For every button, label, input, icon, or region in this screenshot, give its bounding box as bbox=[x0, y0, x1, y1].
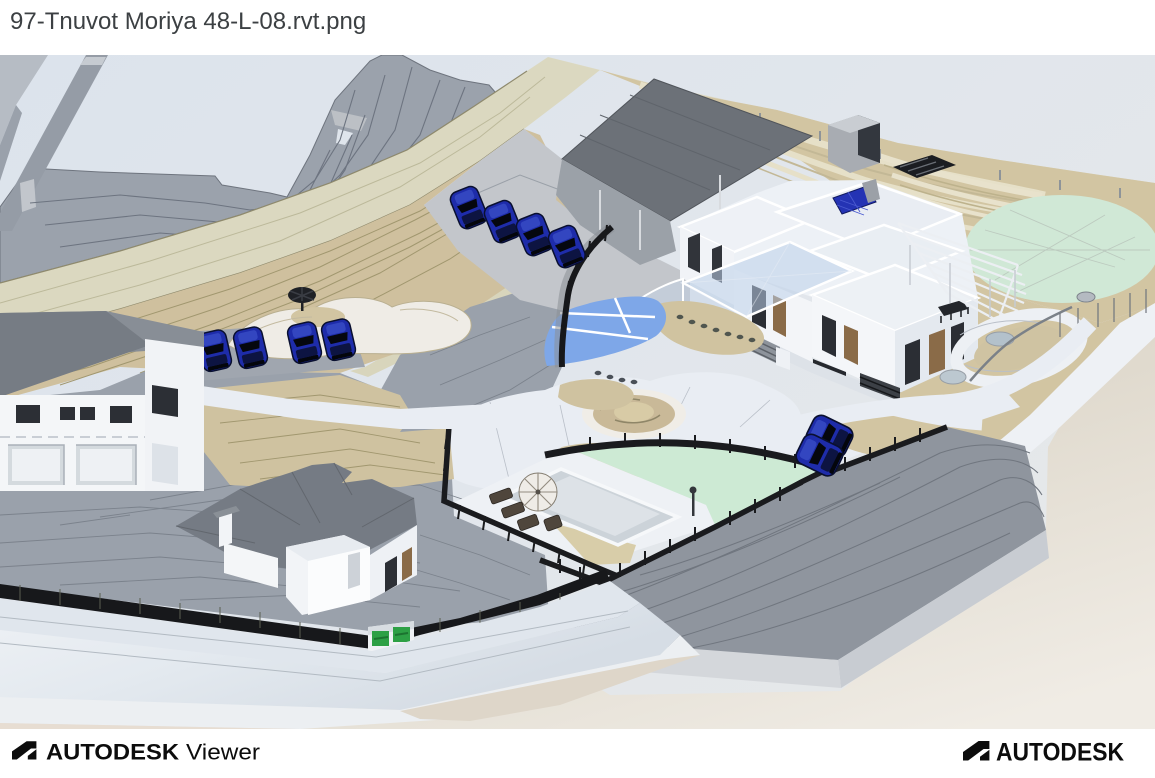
svg-text:AUTODESK: AUTODESK bbox=[46, 740, 180, 765]
svg-text:Viewer: Viewer bbox=[186, 740, 261, 765]
svg-text:AUTODESK: AUTODESK bbox=[996, 739, 1124, 767]
